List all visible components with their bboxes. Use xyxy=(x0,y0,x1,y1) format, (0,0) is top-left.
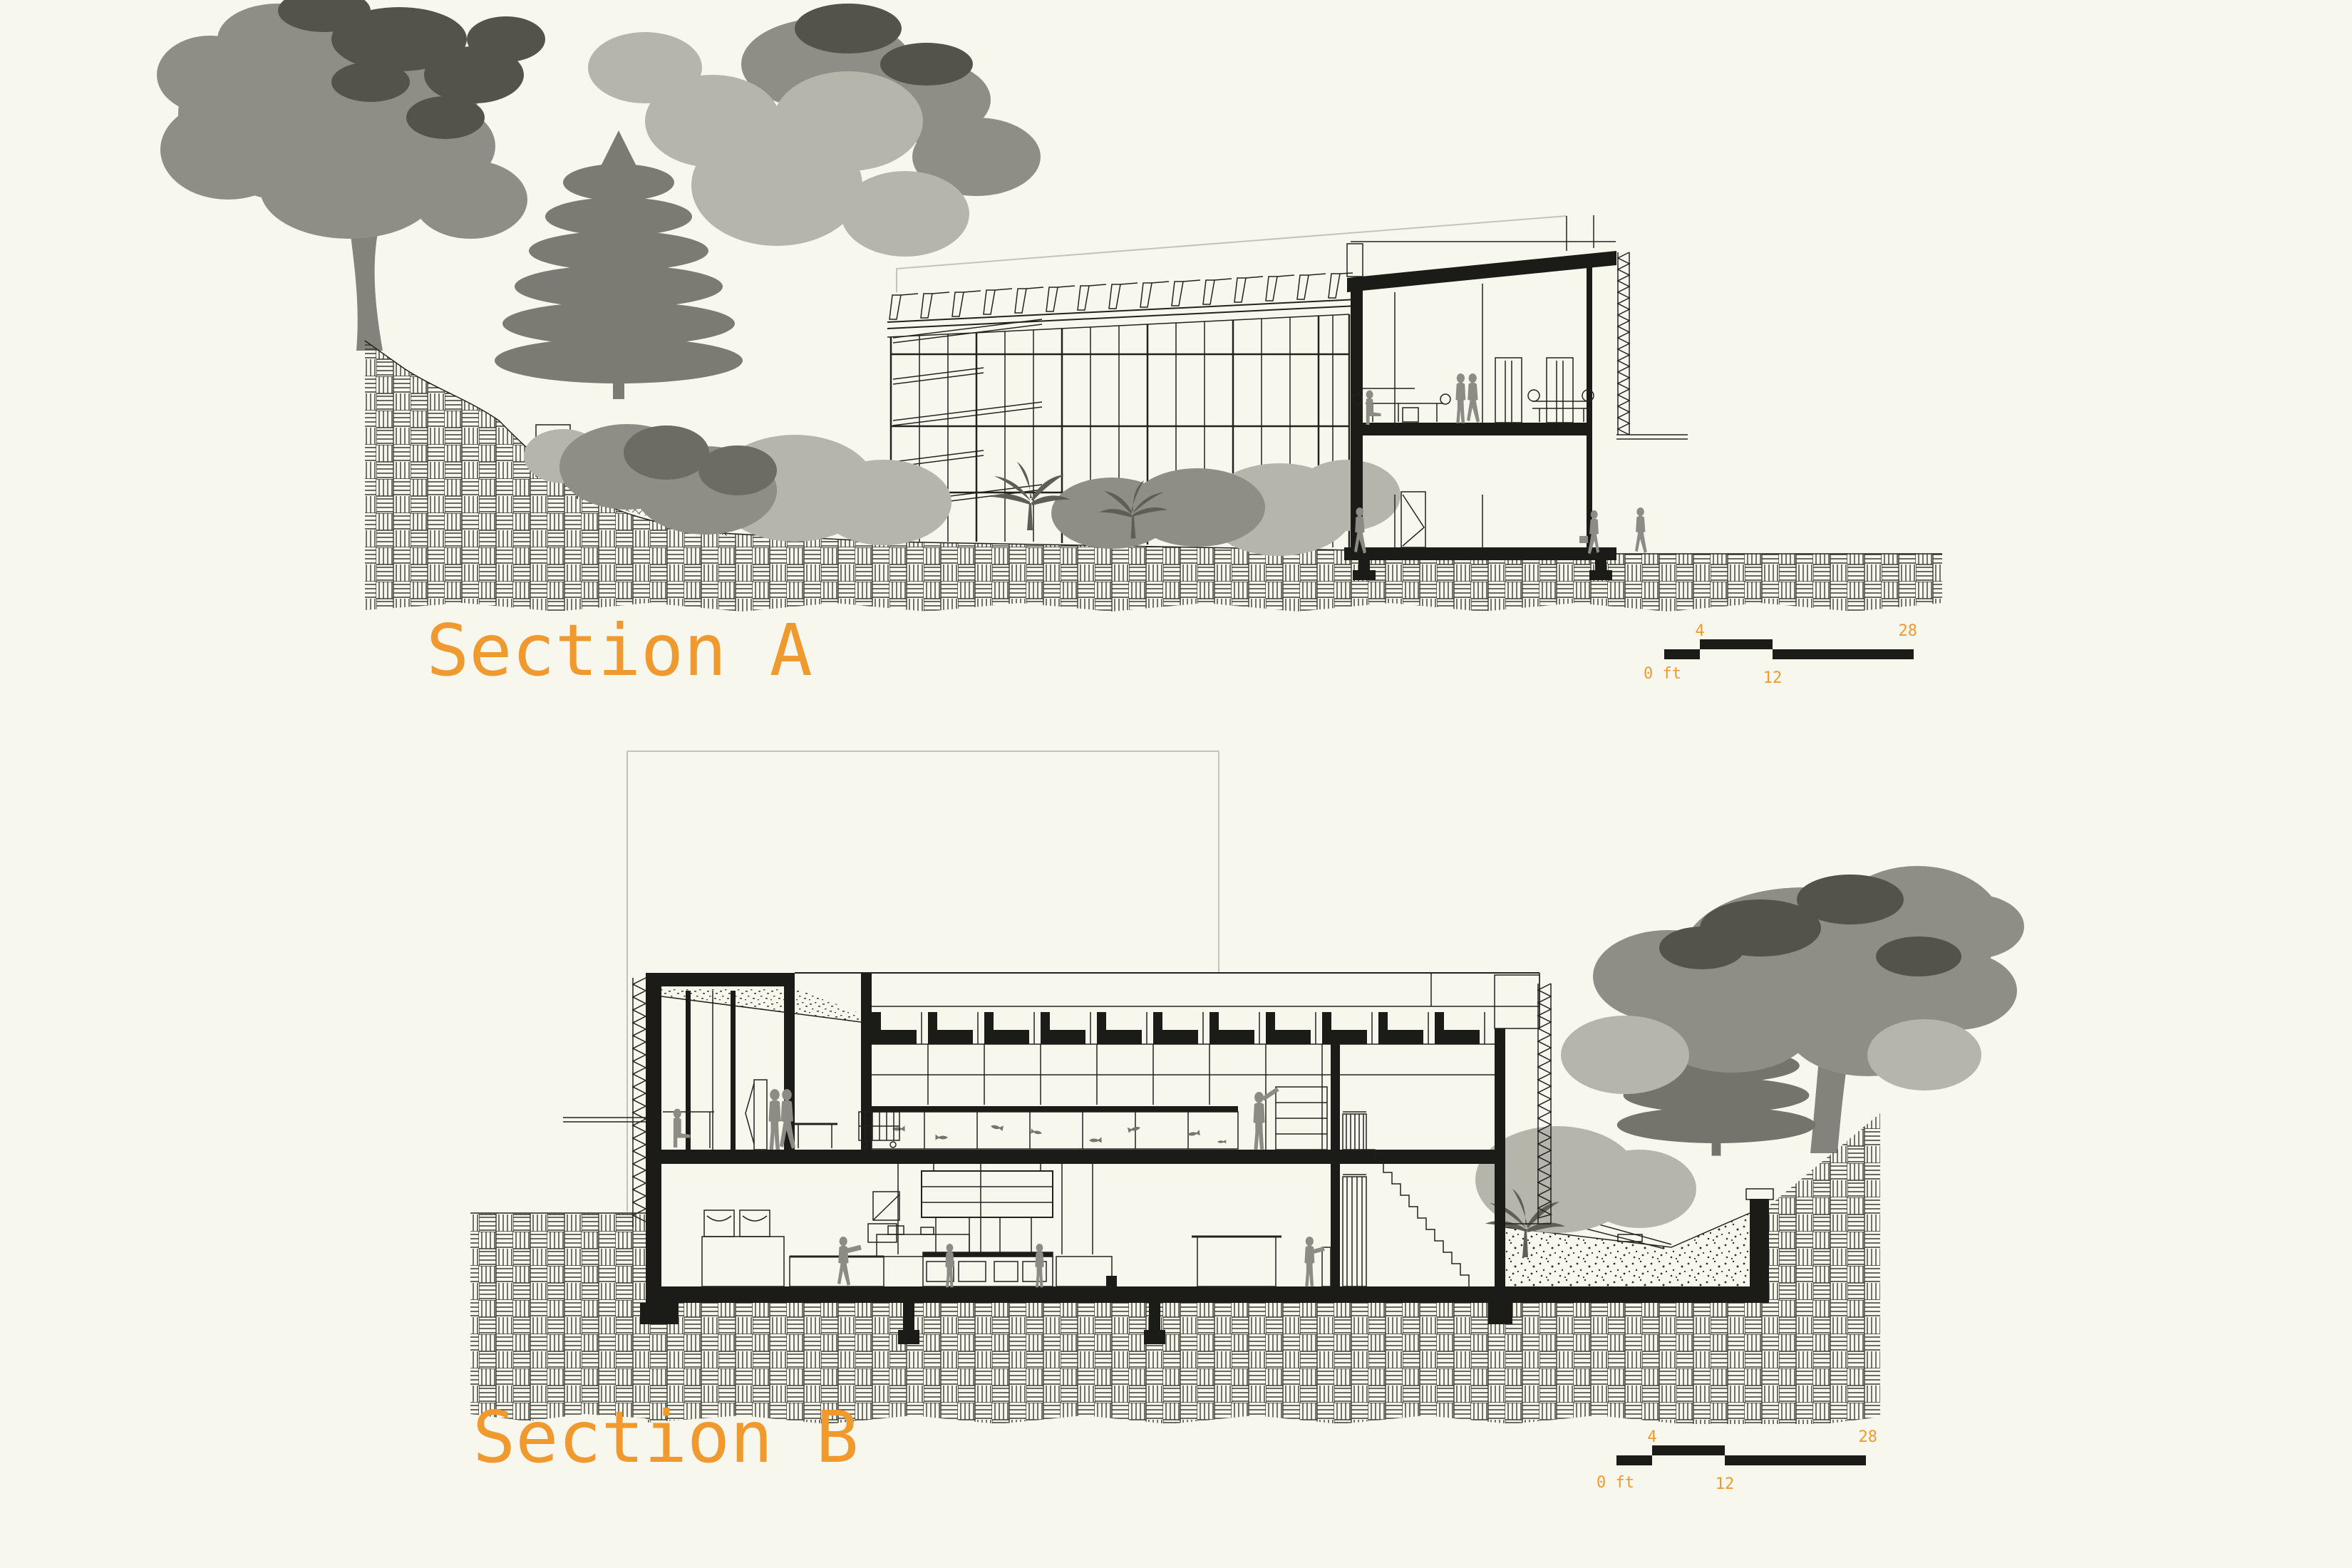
scale-mid-bottom-label: 12 xyxy=(1716,1475,1735,1493)
roof-slab-cut xyxy=(646,973,795,986)
scale-mid-bottom-label: 12 xyxy=(1763,669,1783,687)
right-wall-cut xyxy=(1495,1028,1505,1286)
interior-wall-cut xyxy=(1331,1044,1340,1286)
drawing-canvas: Section A Section B 0 ft 4 12 28 0 ft 4 … xyxy=(0,0,2352,1568)
scale-mid-top-label: 4 xyxy=(1695,622,1704,640)
floor-slab-cut xyxy=(1351,423,1592,435)
scale-zero-label: 0 ft xyxy=(1597,1474,1634,1492)
scale-end-label: 28 xyxy=(1899,622,1918,640)
ground-slab-cut xyxy=(646,1286,1769,1303)
floor-slab-cut xyxy=(661,1150,1495,1164)
scale-mid-top-label: 4 xyxy=(1647,1428,1656,1446)
left-wall-cut xyxy=(646,973,661,1286)
section-b-label: Section B xyxy=(473,1396,859,1479)
architectural-sheet: Section A Section B 0 ft 4 12 28 0 ft 4 … xyxy=(0,0,2352,1568)
ground-slab-cut xyxy=(1344,547,1616,560)
section-a-label: Section A xyxy=(426,609,813,692)
scale-zero-label: 0 ft xyxy=(1644,665,1681,683)
scale-end-label: 28 xyxy=(1859,1428,1878,1446)
